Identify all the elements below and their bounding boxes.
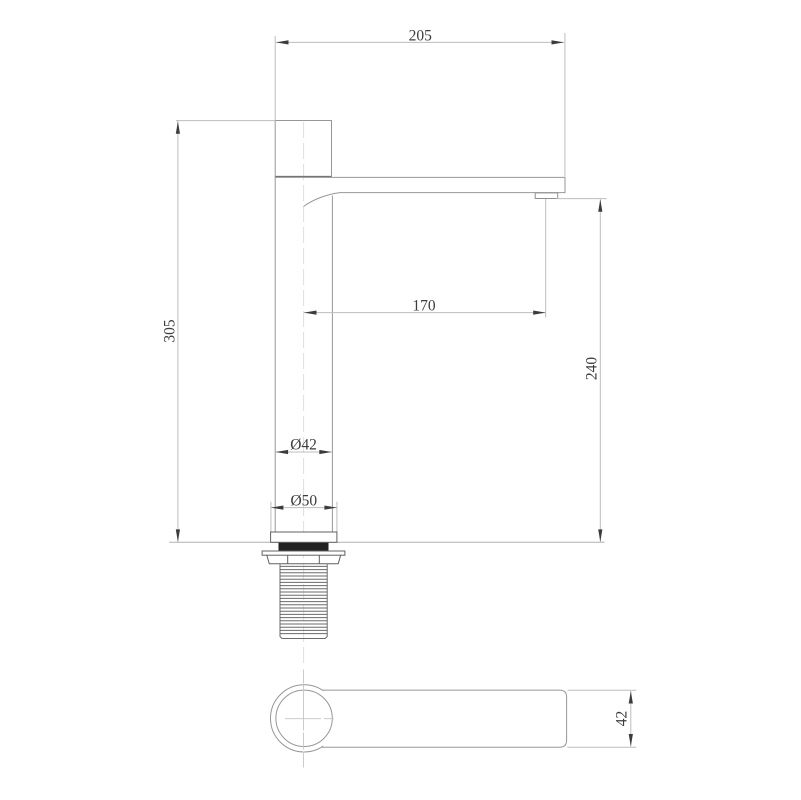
svg-text:Ø42: Ø42 <box>290 437 317 454</box>
svg-text:240: 240 <box>583 357 600 381</box>
svg-text:42: 42 <box>614 711 631 727</box>
svg-text:170: 170 <box>412 297 436 314</box>
svg-text:205: 205 <box>409 27 433 44</box>
svg-text:Ø50: Ø50 <box>290 492 317 509</box>
svg-text:305: 305 <box>161 319 178 343</box>
